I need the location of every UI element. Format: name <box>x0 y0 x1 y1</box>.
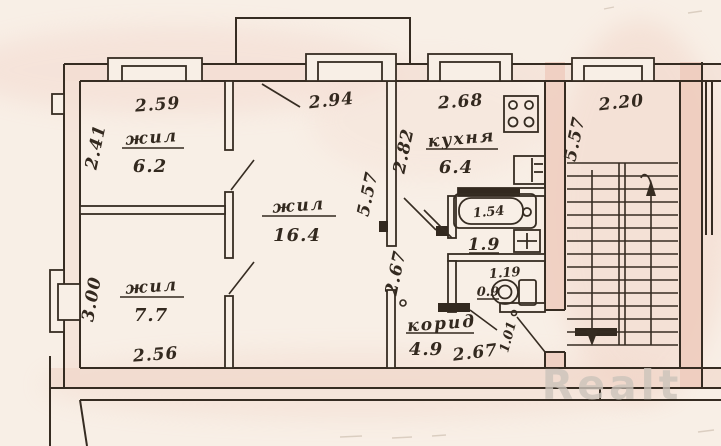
wall-main-room-corridor <box>387 290 395 368</box>
floor-plan-drawing: 2.59 2.41 жил 6.2 2.94 5.57 жил 16.4 2.6… <box>0 0 721 446</box>
room2-area: 16.4 <box>273 225 321 246</box>
room2-label: жил <box>272 194 326 218</box>
wall-between-small-rooms <box>80 206 225 214</box>
bathroom-area: 1.9 <box>468 235 501 255</box>
wall-left-rooms-lower <box>225 296 233 368</box>
room3-label: жил <box>125 275 179 299</box>
window-main-room-inner <box>318 62 382 81</box>
dim-kitchen-width: 2.68 <box>436 90 484 113</box>
wall-left-rooms-middle <box>225 192 233 258</box>
kitchen-area: 6.4 <box>439 157 473 178</box>
window-room3-inner <box>58 284 80 320</box>
floor-plan-scan: 2.59 2.41 жил 6.2 2.94 5.57 жил 16.4 2.6… <box>0 0 721 446</box>
window-stairwell-inner <box>584 66 642 81</box>
wc-area: 0.9 <box>477 285 500 300</box>
dim-room3-width: 2.56 <box>131 343 179 366</box>
corridor-area: 4.9 <box>409 339 443 360</box>
realt-watermark: Realt <box>542 361 683 409</box>
room1-area: 6.2 <box>133 156 167 177</box>
left-wall-ledge <box>52 94 64 114</box>
window-room1-inner <box>122 66 186 81</box>
wall-left-rooms-upper <box>225 81 233 150</box>
filled-wall-wc-corridor <box>438 303 470 312</box>
window-kitchen-inner <box>440 62 500 81</box>
wall-jamb-mark-1 <box>379 221 388 232</box>
dim-wc-width: 1.19 <box>488 265 521 282</box>
room1-label: жил <box>125 126 179 150</box>
wall-bathroom-wc <box>448 254 545 261</box>
dim-room1-width: 2.59 <box>133 93 181 116</box>
dim-bathtub-length: 1.54 <box>472 204 505 222</box>
room3-area: 7.7 <box>134 305 168 326</box>
